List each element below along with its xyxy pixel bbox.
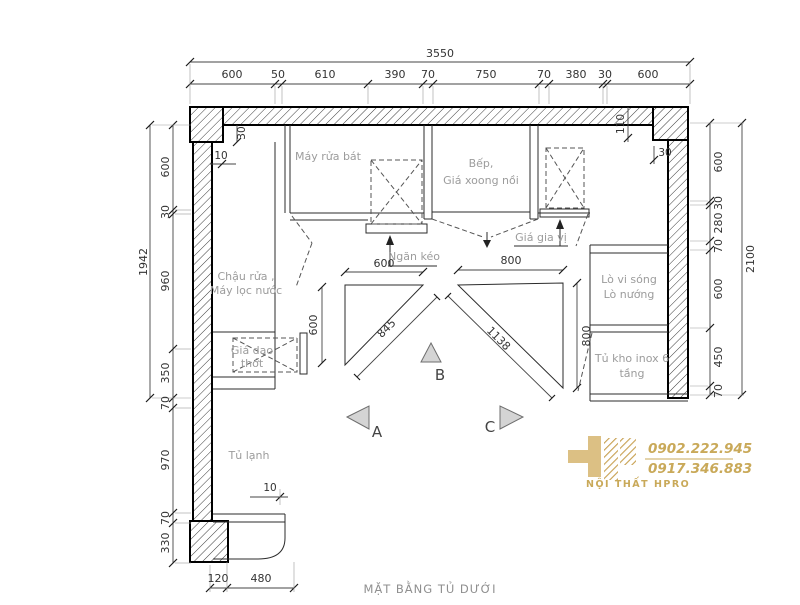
label-fridge: Tủ lạnh	[228, 449, 270, 462]
floor-plan-page: 3550 600 50 610 390 70 750 70 380 30 600…	[0, 0, 800, 605]
label-sink-1: Chậu rửa ,	[217, 270, 274, 283]
logo-p-bowl	[620, 438, 636, 465]
dim-tri-right-top: 800	[501, 254, 522, 267]
pullout-rail	[300, 333, 307, 374]
wall-top	[190, 107, 688, 125]
dim-right-seg: 600	[712, 152, 725, 173]
marker-c-label: C	[485, 418, 495, 436]
dim-top-seg: 50	[271, 68, 285, 81]
label-microwave: Lò vi sóng	[601, 273, 657, 286]
appliance-box-spice	[546, 148, 584, 208]
dim-top-seg: 390	[385, 68, 406, 81]
dim-left-total: 1942	[137, 248, 150, 276]
dim-left-seg: 30	[159, 205, 172, 219]
label-drawer: Ngăn kéo	[388, 250, 440, 263]
dim-wall-tr-h: 30	[658, 147, 671, 159]
dim-left-seg: 600	[159, 157, 172, 178]
logo-p-stem	[604, 438, 618, 480]
wall-corner-top-left	[190, 107, 223, 142]
cabinet-outlines	[213, 125, 688, 559]
unit-labels: Máy rửa bát Bếp, Giá xoong nồi Ngăn kéo …	[210, 150, 669, 462]
dim-fridge-gap: 10	[263, 482, 276, 494]
label-dishwasher: Máy rửa bát	[295, 150, 362, 163]
door-swing-corner-left	[292, 216, 312, 287]
dim-left-seg: 70	[159, 511, 172, 525]
label-sink-2: Máy lọc nước	[210, 284, 282, 297]
dim-right-seg: 70	[712, 239, 725, 253]
label-knife-rack-2: thớt	[241, 357, 264, 370]
logo-phone-2: 0917.346.883	[648, 461, 752, 477]
label-hob-1: Bếp,	[469, 157, 494, 170]
dim-left-seg: 970	[159, 450, 172, 471]
dim-top-total: 3550	[426, 47, 454, 60]
logo: 0902.222.945 0917.346.883 NỘI THẤT HPRO	[568, 436, 752, 490]
dim-right-seg: 30	[712, 196, 725, 210]
dim-tri-right-side: 800	[580, 326, 593, 347]
dim-wall-tl-v: 30	[236, 126, 248, 139]
door-swing-spice	[576, 214, 588, 246]
floor-plan-drawing: 3550 600 50 610 390 70 750 70 380 30 600…	[0, 0, 800, 605]
label-storage-2: tầng	[619, 367, 644, 380]
dim-left-seg: 960	[159, 271, 172, 292]
dim-left-seg: 330	[159, 533, 172, 554]
dim-top-seg: 30	[598, 68, 612, 81]
dim-right-seg: 600	[712, 279, 725, 300]
dim-right-seg: 450	[712, 347, 725, 368]
dim-bottom-seg: 120	[208, 572, 229, 585]
marker-a-triangle	[347, 406, 369, 429]
dim-top-seg: 380	[566, 68, 587, 81]
dim-tri-left-side: 600	[307, 315, 320, 336]
wall-left	[193, 142, 212, 521]
wall-right	[668, 140, 688, 398]
marker-b-triangle	[421, 343, 441, 362]
logo-h-stem	[588, 436, 601, 477]
dim-left-seg: 70	[159, 396, 172, 410]
logo-name: NỘI THẤT HPRO	[586, 477, 690, 490]
marker-a-label: A	[372, 423, 383, 441]
drawing-title: MẶT BẰNG TỦ DƯỚI	[363, 580, 496, 596]
pullout-plate-left	[366, 224, 427, 233]
dim-top-seg: 70	[537, 68, 551, 81]
label-hob-2: Giá xoong nồi	[443, 174, 519, 187]
dim-top-seg: 70	[421, 68, 435, 81]
label-knife-rack-1: Giá dao	[231, 344, 274, 357]
position-markers: A B C	[347, 343, 523, 441]
label-storage-1: Tủ kho inox 6	[594, 352, 669, 365]
dim-top-seg: 600	[222, 68, 243, 81]
triangle-counter-right	[458, 283, 563, 388]
dim-right-seg: 70	[712, 384, 725, 398]
dim-right-seg: 280	[712, 213, 725, 234]
dim-bottom-seg: 480	[251, 572, 272, 585]
wall-block-bottom-left	[190, 521, 228, 562]
dim-wall-tr-v: 110	[615, 114, 627, 134]
dim-top-seg: 600	[638, 68, 659, 81]
label-oven: Lò nướng	[604, 288, 655, 301]
appliance-box-dishwasher	[371, 160, 422, 224]
dim-top-seg: 610	[315, 68, 336, 81]
marker-b-label: B	[435, 366, 445, 384]
dim-wall-tl-h: 10	[214, 150, 227, 162]
marker-c-triangle	[500, 406, 523, 429]
wall-corner-top-right	[653, 107, 688, 140]
logo-h-mark	[568, 450, 588, 463]
dim-top-seg: 750	[476, 68, 497, 81]
spice-arrow-head	[556, 219, 564, 229]
logo-phone-1: 0902.222.945	[648, 441, 752, 457]
dim-left-seg: 350	[159, 363, 172, 384]
dim-right-total: 2100	[744, 245, 757, 273]
label-spice-rack: Giá gia vị	[515, 231, 567, 244]
drawer-arrow-head	[386, 235, 394, 245]
